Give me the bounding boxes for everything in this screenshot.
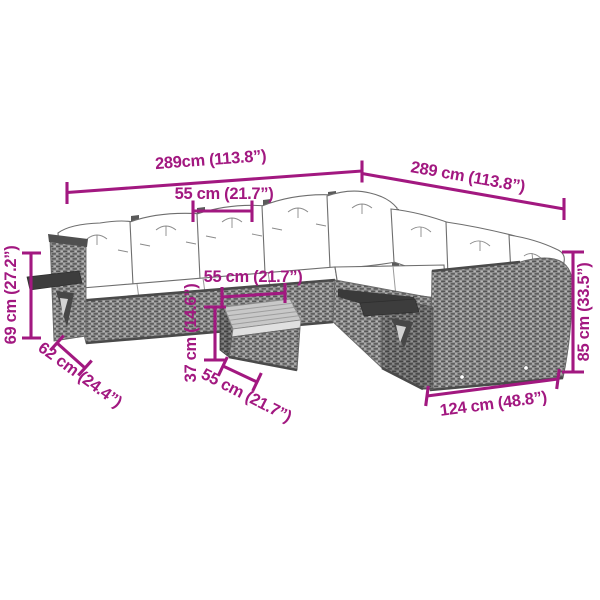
dim-label: 55 cm (21.7”) bbox=[198, 365, 294, 426]
dim-seat-depth-left: 62 cm (24.4”) bbox=[35, 336, 126, 412]
back-cushion bbox=[262, 195, 334, 273]
dim-label: 55 cm (21.7”) bbox=[204, 268, 303, 286]
dim-label: 289cm (113.8”) bbox=[154, 147, 266, 173]
dim-label: 37 cm (14.6”) bbox=[182, 284, 200, 383]
sofa-set bbox=[27, 191, 572, 390]
dim-label: 69 cm (27.2”) bbox=[2, 246, 20, 345]
dim-label: 289 cm (113.8”) bbox=[409, 158, 526, 196]
coffee-table bbox=[220, 299, 301, 370]
dim-label: 55 cm (21.7”) bbox=[175, 185, 274, 203]
diagram-canvas: 289cm (113.8”) 289 cm (113.8”) 55 cm (21… bbox=[0, 0, 600, 600]
dim-label: 62 cm (24.4”) bbox=[35, 339, 126, 412]
dim-label: 85 cm (33.5”) bbox=[575, 263, 593, 362]
back-cushion bbox=[130, 213, 203, 285]
left-armrest bbox=[50, 239, 86, 341]
foot-cap bbox=[524, 366, 528, 370]
dim-armrest-height-left: 69 cm (27.2”) bbox=[2, 246, 41, 345]
product-dimension-diagram: 289cm (113.8”) 289 cm (113.8”) 55 cm (21… bbox=[0, 0, 600, 600]
foot-cap bbox=[460, 375, 464, 379]
left-armrest-tray bbox=[27, 234, 88, 341]
right-arm-back-panel bbox=[430, 258, 572, 390]
back-cushion bbox=[327, 191, 397, 268]
